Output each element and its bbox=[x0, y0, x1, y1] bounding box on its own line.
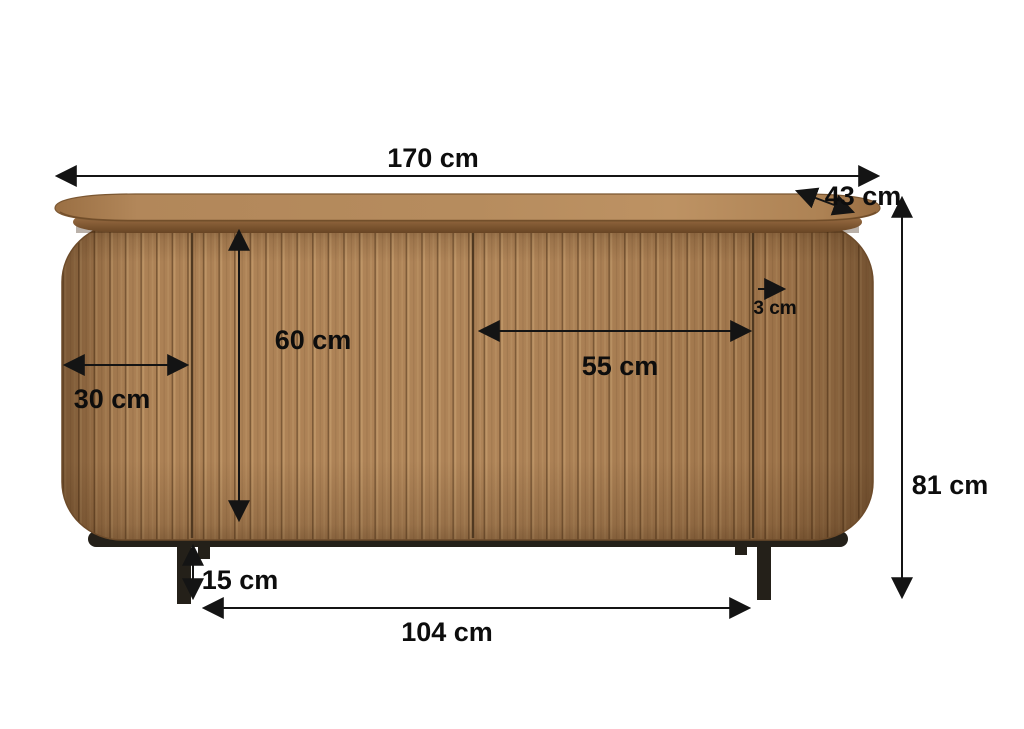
overall-width-label: 170 cm bbox=[387, 143, 479, 173]
diagram-canvas: 170 cm 43 cm 81 cm 60 cm 55 cm 30 cm 3 c… bbox=[0, 0, 1024, 729]
panel-thickness-label: 3 cm bbox=[753, 298, 796, 319]
front-left-leg bbox=[177, 541, 191, 604]
dimension-leg-spacing: 104 cm bbox=[204, 608, 749, 647]
overall-height-label: 81 cm bbox=[912, 470, 989, 500]
dimension-overall-width: 170 cm bbox=[57, 143, 878, 176]
dimension-overall-height: 81 cm bbox=[902, 198, 988, 597]
rear-left-leg bbox=[198, 539, 210, 559]
sideboard-dimension-diagram: 170 cm 43 cm 81 cm 60 cm 55 cm 30 cm 3 c… bbox=[0, 0, 1024, 729]
door-height-label: 60 cm bbox=[275, 325, 352, 355]
leg-spacing-label: 104 cm bbox=[401, 617, 493, 647]
table-top bbox=[55, 194, 880, 221]
top-depth-label: 43 cm bbox=[825, 181, 902, 211]
leg-height-label: 15 cm bbox=[202, 565, 279, 595]
side-section-label: 30 cm bbox=[74, 384, 151, 414]
front-right-leg bbox=[757, 541, 771, 600]
rear-right-leg bbox=[735, 539, 747, 555]
sideboard-illustration bbox=[55, 194, 880, 604]
door-width-label: 55 cm bbox=[582, 351, 659, 381]
cabinet-body-vertical-shading bbox=[62, 224, 873, 540]
